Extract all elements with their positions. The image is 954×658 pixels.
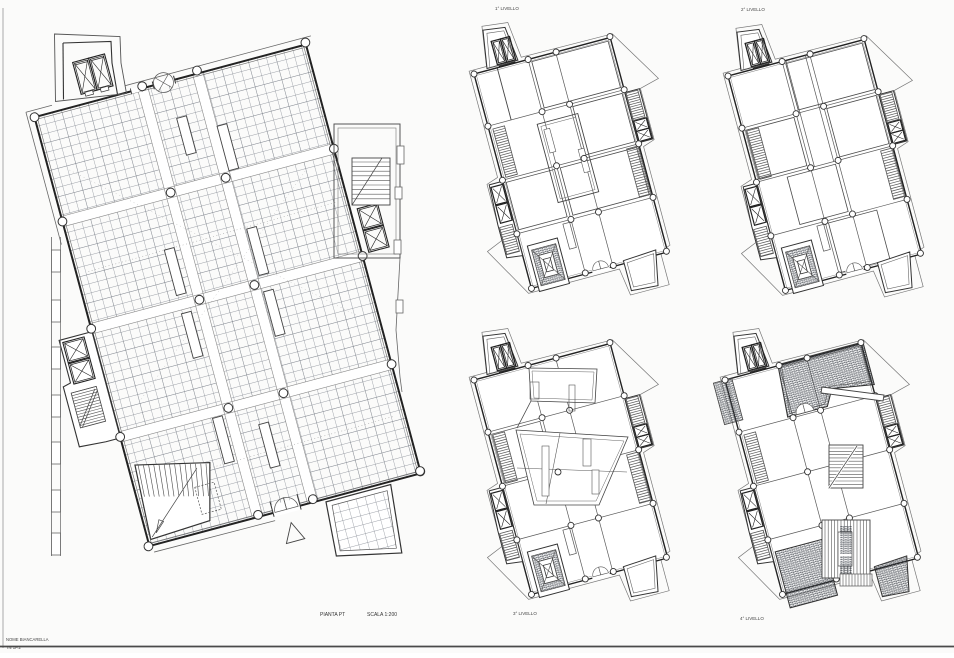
svg-text:2° LIVELLO: 2° LIVELLO [741,7,765,12]
svg-text:SCALA 1:200: SCALA 1:200 [367,612,397,618]
svg-text:3° LIVELLO: 3° LIVELLO [513,611,537,616]
svg-text:PIANTA PT: PIANTA PT [320,612,345,618]
svg-text:1° LIVELLO: 1° LIVELLO [495,6,519,11]
svg-text:TN 1P.2: TN 1P.2 [6,645,21,650]
svg-text:4° LIVELLO: 4° LIVELLO [740,616,764,621]
svg-text:NOME BIANCARELLA: NOME BIANCARELLA [6,637,49,642]
